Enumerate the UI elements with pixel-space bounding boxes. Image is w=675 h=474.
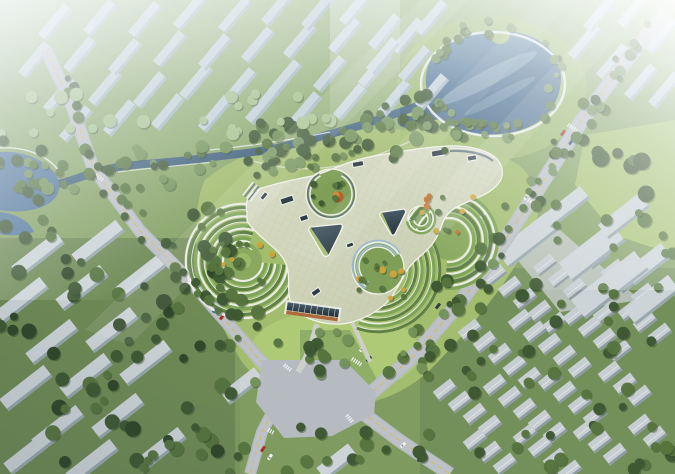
rendering-canvas: Aerial architectural rendering of a tri-… <box>0 0 675 474</box>
shadow-bottom-left <box>0 300 240 474</box>
aerial-rendering-scene: Aerial architectural rendering of a tri-… <box>0 0 675 474</box>
